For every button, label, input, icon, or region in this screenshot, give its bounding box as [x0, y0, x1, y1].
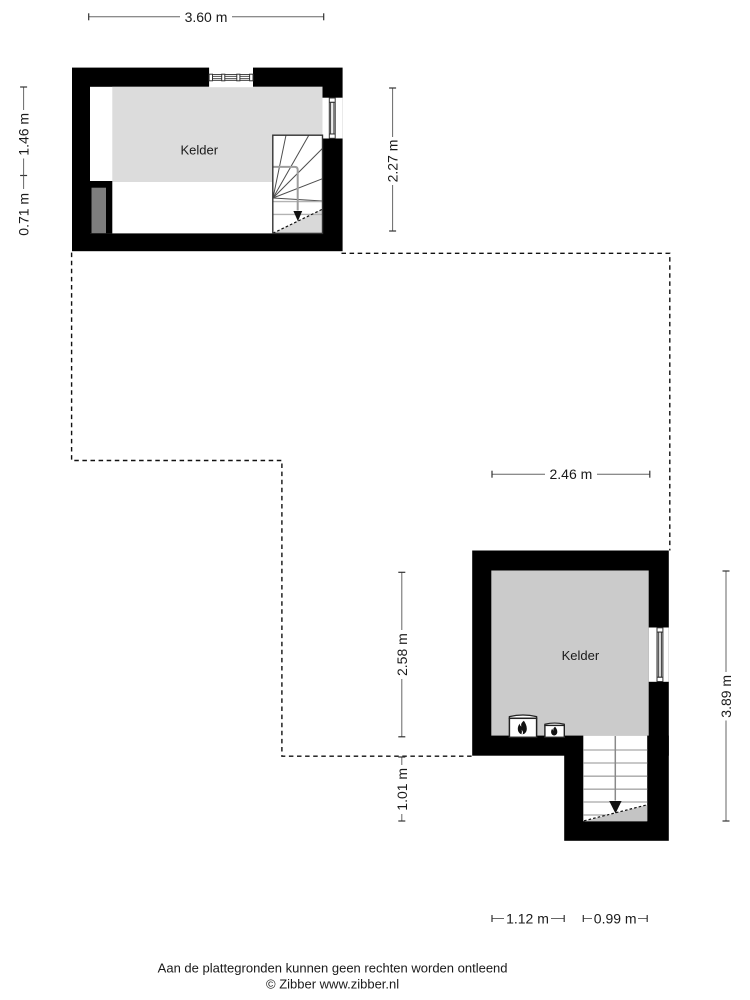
svg-text:1.12 m: 1.12 m — [506, 911, 549, 927]
svg-text:0.99 m: 0.99 m — [594, 911, 637, 927]
svg-text:Aan de plattegronden kunnen ge: Aan de plattegronden kunnen geen rechten… — [158, 960, 508, 975]
svg-text:0.71 m: 0.71 m — [16, 193, 32, 236]
svg-text:2.27 m: 2.27 m — [385, 140, 401, 183]
svg-text:Kelder: Kelder — [562, 648, 600, 663]
svg-text:3.89 m: 3.89 m — [718, 675, 734, 718]
svg-text:1.01 m: 1.01 m — [394, 768, 410, 811]
svg-text:© Zibber www.zibber.nl: © Zibber www.zibber.nl — [266, 976, 399, 991]
svg-text:3.60 m: 3.60 m — [185, 9, 228, 25]
svg-text:1.46 m: 1.46 m — [16, 113, 32, 156]
svg-text:Kelder: Kelder — [181, 142, 219, 157]
svg-text:2.46 m: 2.46 m — [549, 466, 592, 482]
svg-text:2.58 m: 2.58 m — [394, 633, 410, 676]
